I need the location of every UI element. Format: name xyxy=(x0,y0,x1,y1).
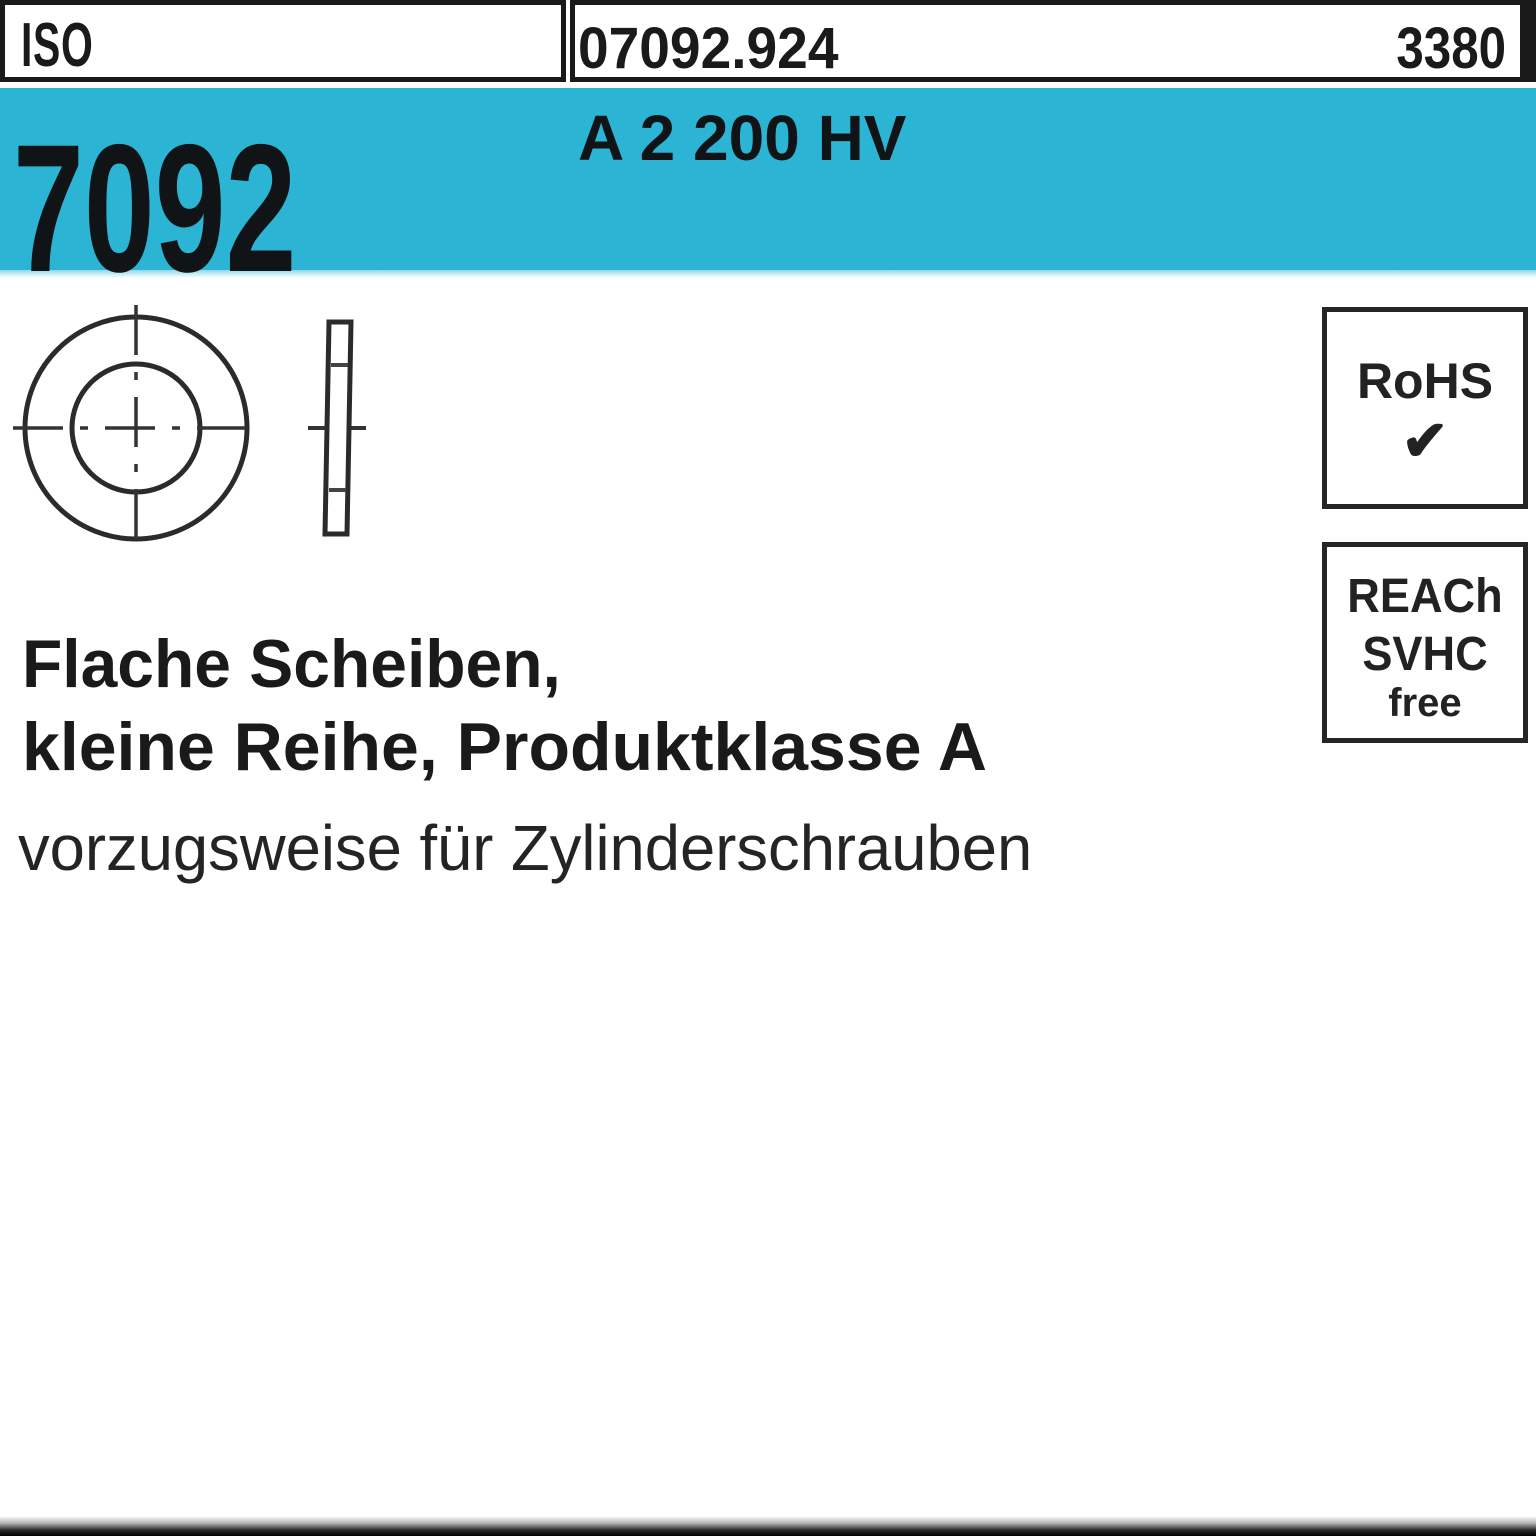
norm-number: 7092 xyxy=(13,117,296,299)
checkmark-icon: ✔ xyxy=(1327,408,1523,474)
product-datasheet-card: ISO 07092.924 3380 7092 A 2 200 HV RoHS … xyxy=(0,0,1536,1536)
standard-org-label: ISO xyxy=(21,15,93,77)
rohs-label: RoHS xyxy=(1327,352,1523,410)
catalog-page-number: 3380 xyxy=(1396,20,1506,78)
rohs-badge: RoHS ✔ xyxy=(1322,307,1528,509)
reach-svhc-badge: REACh SVHC free xyxy=(1322,542,1528,743)
washer-side-view xyxy=(308,322,366,534)
washer-front-view xyxy=(13,305,258,548)
free-label: free xyxy=(1327,681,1523,726)
bottom-edge-bar xyxy=(0,1516,1536,1536)
product-title-line1: Flache Scheiben, xyxy=(22,630,561,698)
product-title-line2: kleine Reihe, Produktklasse A xyxy=(22,713,987,781)
side-view-outline xyxy=(325,322,351,534)
washer-technical-drawing xyxy=(0,280,400,580)
header-standard-box: ISO xyxy=(0,0,566,82)
reach-label: REACh xyxy=(1333,569,1517,624)
article-number: 07092.924 xyxy=(578,20,838,78)
product-usage-note: vorzugsweise für Zylinderschrauben xyxy=(18,816,1032,880)
svhc-label: SVHC xyxy=(1333,627,1517,682)
material-grade: A 2 200 HV xyxy=(578,106,906,170)
